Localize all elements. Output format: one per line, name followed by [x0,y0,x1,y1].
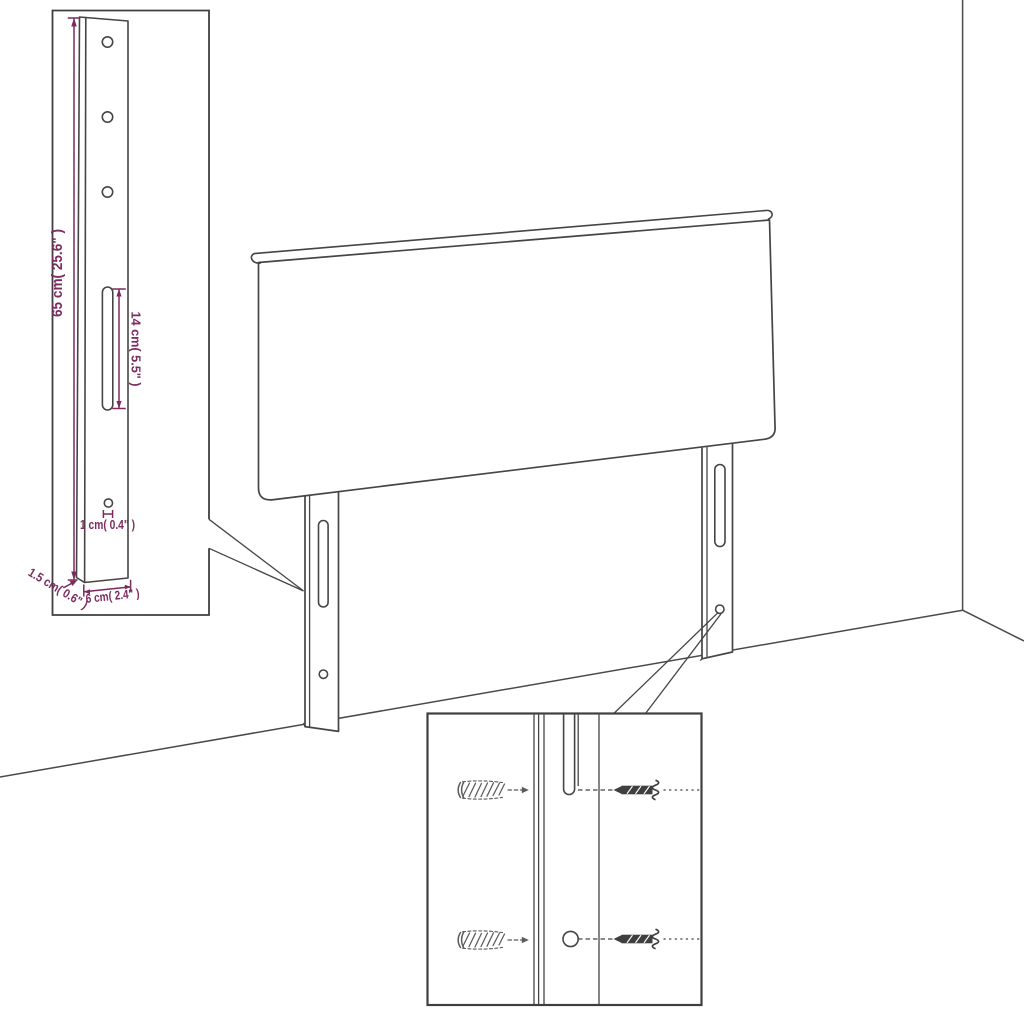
headboard-dimension-diagram: 65 cm( 25.6" ) 14 cm( 5.5" ) 1 cm( 0.4" … [0,0,1024,1024]
right-mounting-leg [700,444,732,661]
dimension-label-slot-length: 14 cm( 5.5" ) [129,312,144,387]
diagram-canvas: 65 cm( 25.6" ) 14 cm( 5.5" ) 1 cm( 0.4" … [0,0,1024,1024]
dimension-label-hole-diameter: 1 cm( 0.4" ) [80,518,135,532]
mounting-detail-inset [428,714,702,1006]
dimension-label-bracket-height: 65 cm( 25.6" ) [49,229,66,317]
callout-lines-inset-to-left-leg [209,519,304,591]
mounting-inset-background [428,714,702,1006]
mounting-screw-shaft [622,786,653,795]
headboard-panel [259,220,776,500]
left-mounting-leg [304,492,339,731]
floor-line-right [963,610,1024,641]
headboard [251,210,775,499]
